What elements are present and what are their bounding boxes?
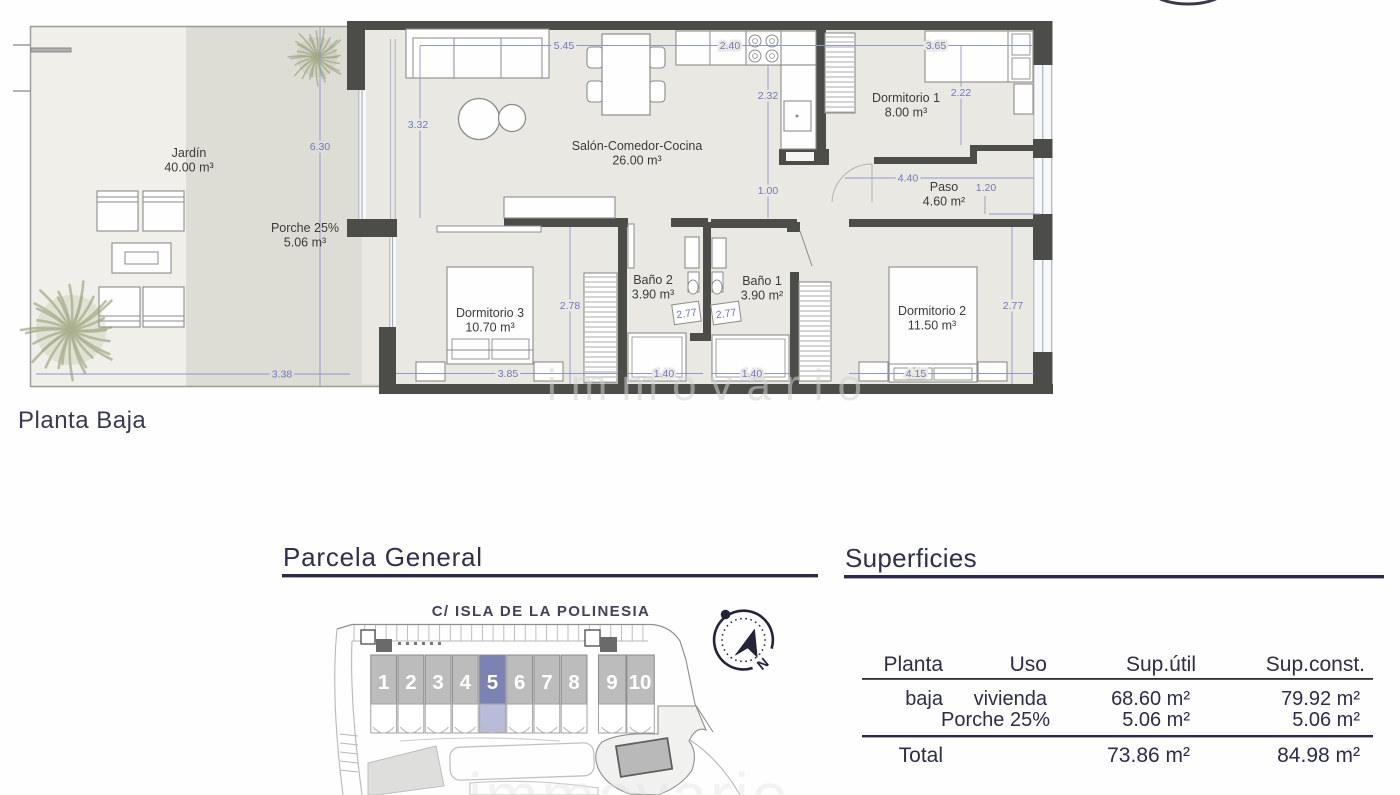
svg-text:2.78: 2.78 [560,300,581,312]
svg-text:79.92 m²: 79.92 m² [1281,688,1360,710]
svg-text:Jardín: Jardín [172,146,207,160]
svg-text:1.00: 1.00 [758,185,779,197]
svg-text:2.32: 2.32 [758,90,779,102]
svg-text:Sup.útil: Sup.útil [1126,653,1196,676]
svg-text:immovario: immovario [468,760,790,795]
svg-text:Dormitorio 2: Dormitorio 2 [898,304,966,318]
svg-text:3: 3 [432,671,443,694]
svg-text:4.15: 4.15 [906,368,927,380]
svg-text:4.40: 4.40 [898,173,919,185]
svg-text:3.38: 3.38 [272,369,293,381]
svg-text:68.60 m²: 68.60 m² [1111,688,1190,710]
svg-text:3.90 m³: 3.90 m³ [632,288,674,302]
svg-text:Salón-Comedor-Cocina: Salón-Comedor-Cocina [572,139,703,153]
svg-text:6: 6 [514,671,525,694]
svg-text:73.86 m²: 73.86 m² [1107,744,1190,767]
svg-text:1: 1 [378,671,389,694]
svg-text:4: 4 [460,671,472,694]
svg-text:Total: Total [899,744,943,767]
svg-text:7: 7 [541,671,552,694]
svg-text:10: 10 [629,671,652,694]
svg-text:Dormitorio 1: Dormitorio 1 [872,91,940,105]
svg-text:5.45: 5.45 [554,40,575,52]
svg-text:Dormitorio 3: Dormitorio 3 [456,306,524,320]
svg-text:immovario: immovario [547,361,876,410]
svg-text:Planta Baja: Planta Baja [18,407,146,434]
svg-text:vivienda: vivienda [974,688,1048,710]
svg-text:Porche 25%: Porche 25% [271,221,339,235]
svg-text:5: 5 [487,671,498,694]
svg-text:Sup.const.: Sup.const. [1266,653,1365,676]
svg-text:3.90 m²: 3.90 m² [741,289,783,303]
svg-text:Baño 1: Baño 1 [742,274,782,288]
svg-text:2.40: 2.40 [720,40,741,52]
svg-text:5.06 m²: 5.06 m² [1122,709,1190,731]
svg-text:9: 9 [606,671,617,694]
svg-text:1.20: 1.20 [976,182,997,194]
svg-text:40.00 m³: 40.00 m³ [164,161,213,175]
svg-text:10.70 m³: 10.70 m³ [465,321,514,335]
svg-text:11.50 m³: 11.50 m³ [908,319,956,333]
svg-text:2: 2 [405,671,416,694]
svg-text:3.32: 3.32 [408,119,429,131]
svg-text:4.60 m²: 4.60 m² [923,195,965,209]
svg-text:Planta: Planta [883,653,943,676]
svg-text:Uso: Uso [1010,653,1047,676]
svg-text:2.22: 2.22 [951,87,972,99]
svg-text:baja: baja [905,688,944,710]
svg-text:Porche 25%: Porche 25% [941,709,1050,731]
svg-text:8: 8 [568,671,579,694]
svg-text:C/ ISLA DE LA POLINESIA: C/ ISLA DE LA POLINESIA [432,603,651,620]
svg-text:Superficies: Superficies [845,543,977,573]
svg-text:26.00 m³: 26.00 m³ [612,154,661,168]
svg-text:Baño 2: Baño 2 [633,273,673,287]
svg-text:6.30: 6.30 [310,141,331,153]
svg-text:Parcela General: Parcela General [283,542,483,572]
svg-text:5.06 m³: 5.06 m³ [284,236,326,250]
svg-text:5.06 m²: 5.06 m² [1292,709,1360,731]
svg-text:3.85: 3.85 [498,368,519,380]
svg-text:8.00 m³: 8.00 m³ [885,106,927,120]
svg-text:2.77: 2.77 [1003,300,1024,312]
svg-text:Paso: Paso [930,180,959,194]
svg-text:84.98 m²: 84.98 m² [1277,744,1360,767]
svg-text:3.65: 3.65 [926,40,947,52]
